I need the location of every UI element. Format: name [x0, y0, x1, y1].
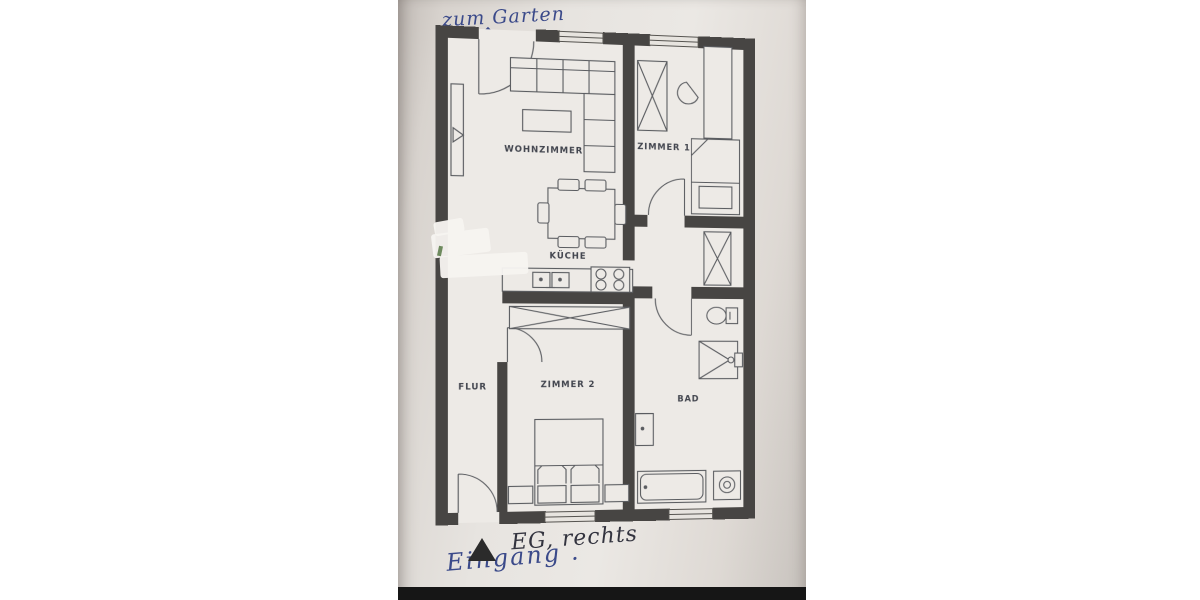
washing-machine — [714, 471, 741, 500]
double-bed — [535, 419, 603, 505]
entrance-triangle-icon — [468, 538, 496, 561]
toilet — [707, 307, 738, 324]
nightstand-right — [605, 484, 629, 501]
chair — [538, 203, 549, 223]
wardrobe-corridor — [704, 232, 731, 286]
chair — [558, 179, 579, 191]
whiteout-patch — [439, 252, 528, 279]
wash-basin — [636, 414, 654, 446]
floorplan-photo: zum Garten ↑ EG, rechts Eingang . — [398, 0, 806, 600]
label-kueche: KÜCHE — [549, 250, 586, 261]
wardrobe-zimmer2 — [509, 306, 629, 329]
handwritten-eingang: Eingang . — [445, 537, 581, 577]
wardrobe-zimmer1 — [638, 61, 667, 132]
label-wohnzimmer: WOHNZIMMER — [504, 144, 583, 156]
dining-table — [538, 179, 626, 249]
chair — [585, 237, 606, 248]
shower — [699, 341, 742, 378]
stove — [591, 267, 630, 292]
coffee-table — [523, 110, 571, 133]
wall-shelf — [451, 84, 463, 176]
label-zimmer2: ZIMMER 2 — [541, 380, 596, 390]
label-bad: BAD — [677, 395, 699, 405]
chair — [558, 236, 579, 247]
chair — [585, 180, 606, 191]
desk — [704, 46, 732, 139]
bathtub — [638, 470, 706, 503]
photo-bottom-band — [398, 587, 806, 600]
nightstand-left — [508, 486, 532, 504]
label-flur: FLUR — [458, 382, 487, 392]
chair — [615, 204, 626, 224]
single-bed — [691, 139, 739, 215]
label-zimmer1: ZIMMER 1 — [637, 142, 690, 153]
screenshot-stage: zum Garten ↑ EG, rechts Eingang . — [0, 0, 1200, 600]
